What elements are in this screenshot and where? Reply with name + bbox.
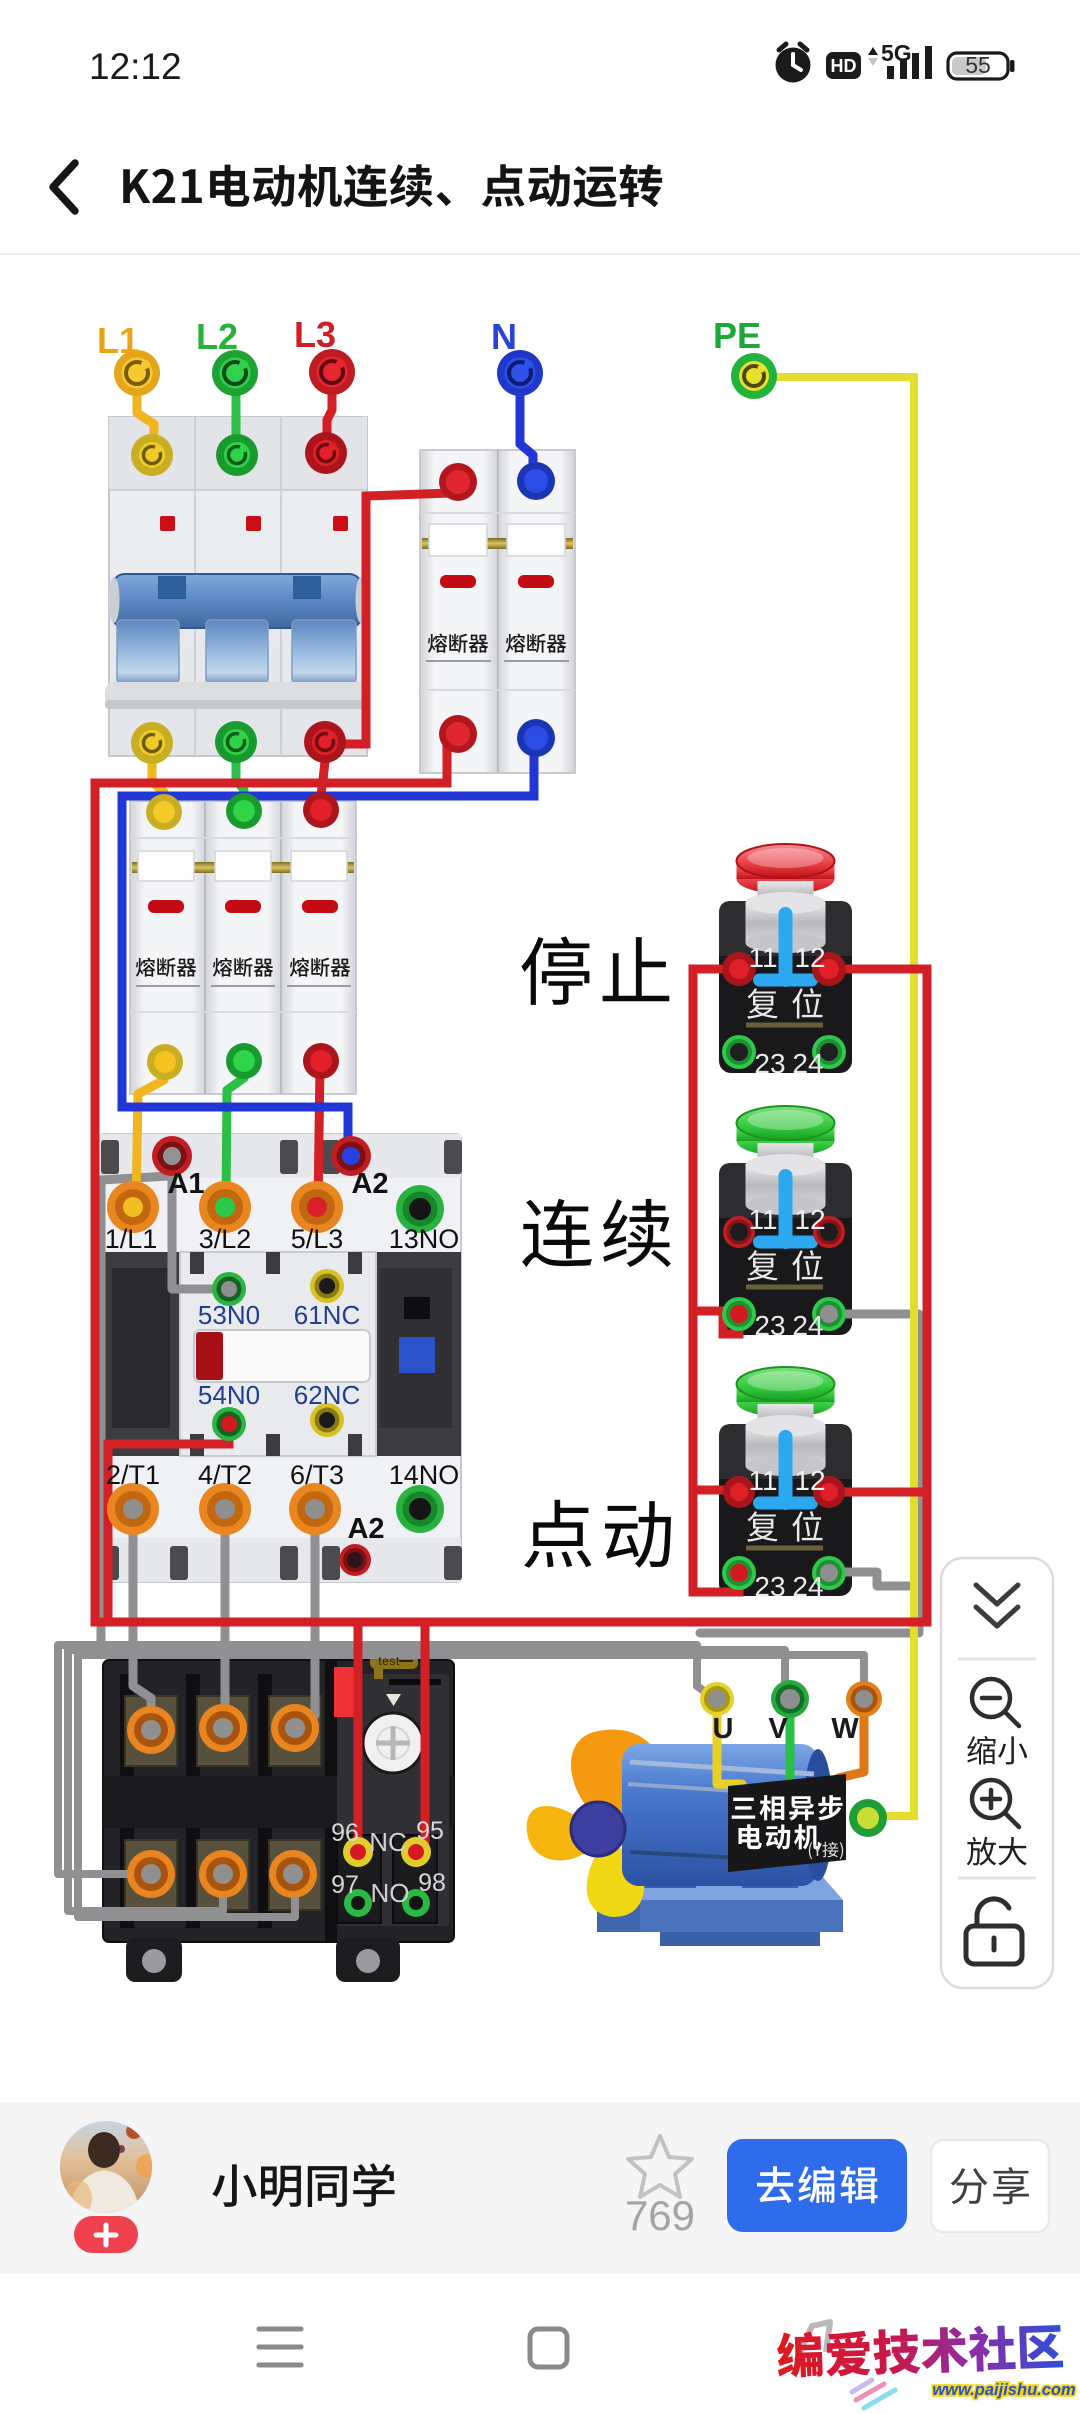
svg-text:12: 12 — [794, 1204, 825, 1235]
svg-text:54N0: 54N0 — [198, 1380, 260, 1410]
svg-text:11: 11 — [748, 1465, 777, 1496]
svg-text:11: 11 — [748, 942, 777, 973]
svg-text:23: 23 — [754, 1048, 785, 1079]
svg-text:W: W — [831, 1713, 859, 1745]
svg-text:6/T3: 6/T3 — [290, 1460, 344, 1490]
svg-text:11: 11 — [748, 1204, 777, 1235]
svg-text:12: 12 — [794, 942, 825, 973]
svg-text:61NC: 61NC — [294, 1300, 360, 1330]
svg-text:14NO: 14NO — [389, 1460, 460, 1490]
svg-text:3/L2: 3/L2 — [199, 1224, 252, 1254]
svg-text:V: V — [768, 1713, 788, 1745]
svg-text:5/L3: 5/L3 — [291, 1224, 344, 1254]
svg-text:24: 24 — [792, 1310, 823, 1341]
svg-text:A2: A2 — [347, 1513, 384, 1545]
svg-text:U: U — [713, 1713, 734, 1745]
svg-text:5G: 5G — [881, 40, 912, 66]
svg-text:test: test — [378, 1654, 400, 1668]
svg-text:N: N — [491, 316, 517, 357]
svg-text:769: 769 — [625, 2192, 695, 2239]
svg-text:97: 97 — [331, 1871, 359, 1899]
svg-text:NC: NC — [369, 1827, 407, 1857]
svg-text:24: 24 — [792, 1048, 823, 1079]
svg-text:L1: L1 — [97, 320, 139, 361]
svg-text:L3: L3 — [294, 314, 336, 355]
svg-text:NO: NO — [371, 1878, 410, 1908]
svg-text:23: 23 — [754, 1310, 785, 1341]
svg-text:1/L1: 1/L1 — [105, 1224, 158, 1254]
svg-text:4/T2: 4/T2 — [198, 1460, 252, 1490]
svg-text:L2: L2 — [196, 316, 238, 357]
svg-text:96: 96 — [331, 1819, 359, 1847]
svg-text:23: 23 — [754, 1571, 785, 1602]
svg-text:HD: HD — [831, 56, 857, 76]
svg-text:95: 95 — [416, 1817, 444, 1845]
svg-text:98: 98 — [418, 1869, 446, 1897]
svg-text:55: 55 — [965, 52, 991, 78]
svg-text:www.paijishu.com: www.paijishu.com — [932, 2381, 1075, 2399]
svg-text:PE: PE — [713, 315, 761, 356]
svg-text:13NO: 13NO — [389, 1224, 460, 1254]
svg-text:62NC: 62NC — [294, 1380, 360, 1410]
svg-text:2/T1: 2/T1 — [106, 1460, 160, 1490]
svg-text:24: 24 — [792, 1571, 823, 1602]
svg-text:A1: A1 — [167, 1168, 204, 1200]
svg-text:A2: A2 — [351, 1168, 388, 1200]
svg-text:53N0: 53N0 — [198, 1300, 260, 1330]
svg-text:12: 12 — [794, 1465, 825, 1496]
